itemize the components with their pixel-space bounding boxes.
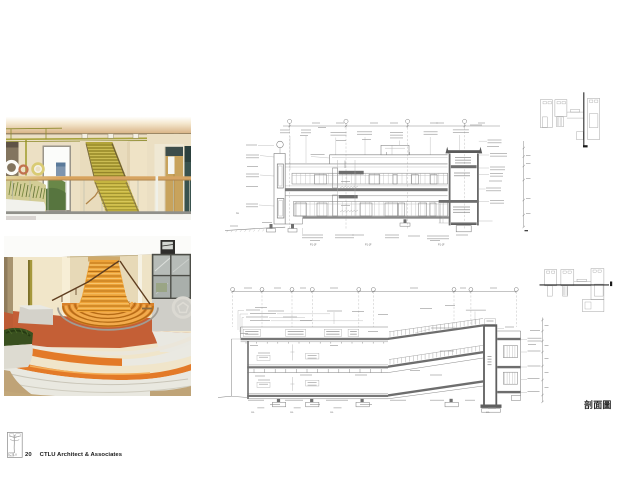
svg-text:CTLU: CTLU xyxy=(9,453,17,457)
svg-text:P1-1F: P1-1F xyxy=(438,244,445,247)
svg-text:1FL: 1FL xyxy=(251,412,256,414)
svg-text:GL: GL xyxy=(236,213,240,215)
svg-text:P1-1F: P1-1F xyxy=(310,244,317,247)
svg-text:1FL: 1FL xyxy=(290,412,295,414)
svg-text:1FL: 1FL xyxy=(330,412,335,414)
svg-text:P1-1F: P1-1F xyxy=(365,244,372,247)
